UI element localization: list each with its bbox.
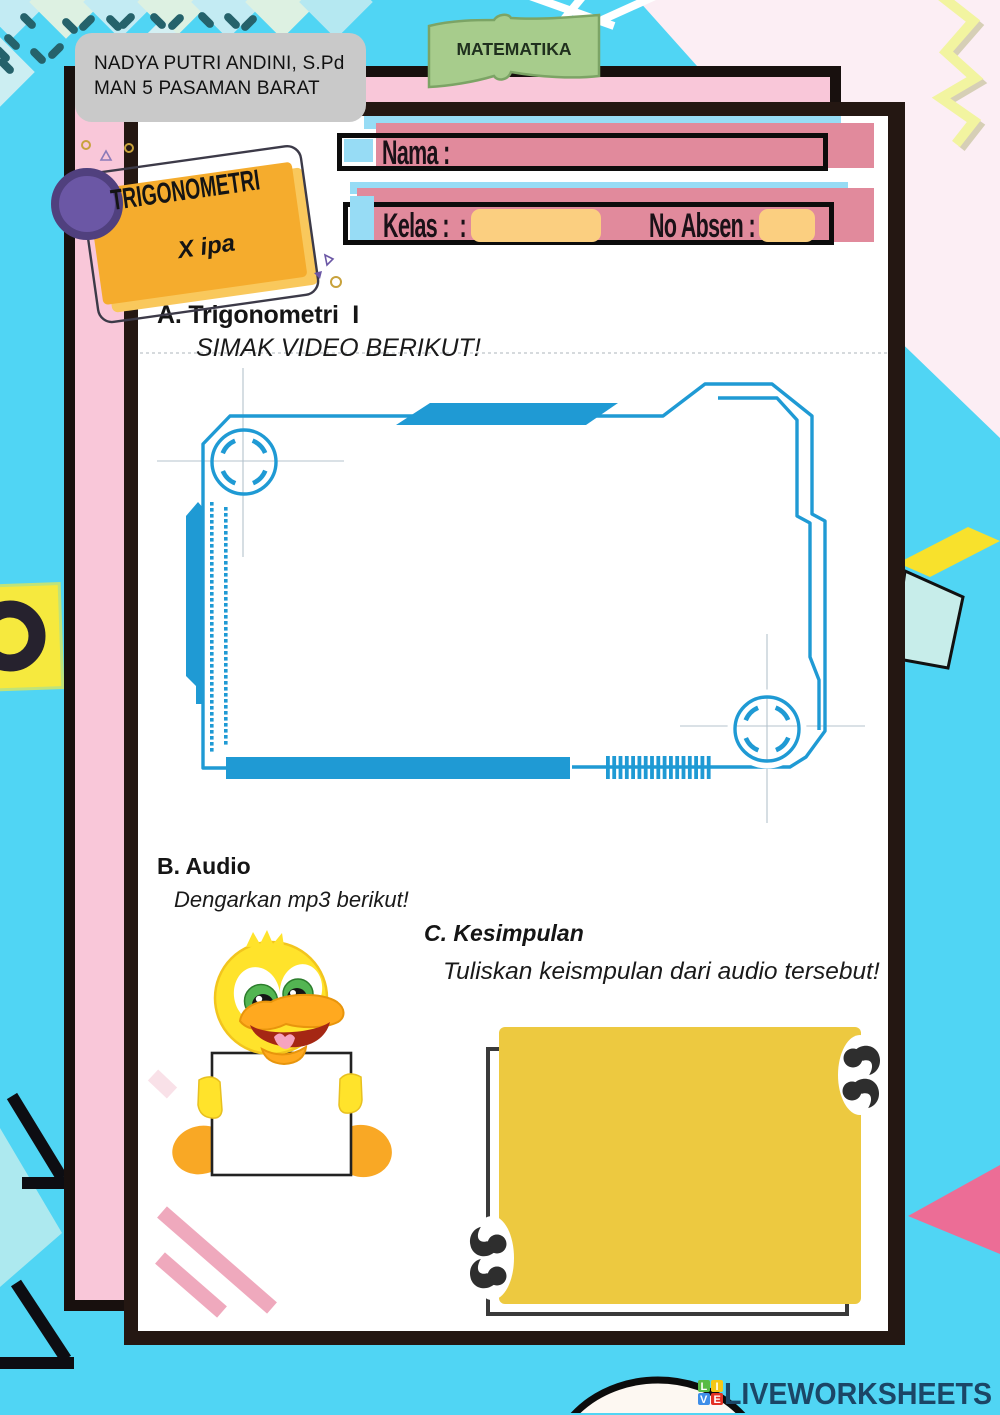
svg-text:L: L — [701, 1381, 708, 1393]
svg-text:V: V — [700, 1394, 708, 1406]
svg-text:LIVEWORKSHEETS: LIVEWORKSHEETS — [724, 1376, 992, 1410]
svg-text:I: I — [716, 1381, 719, 1393]
svg-text:E: E — [714, 1394, 721, 1406]
